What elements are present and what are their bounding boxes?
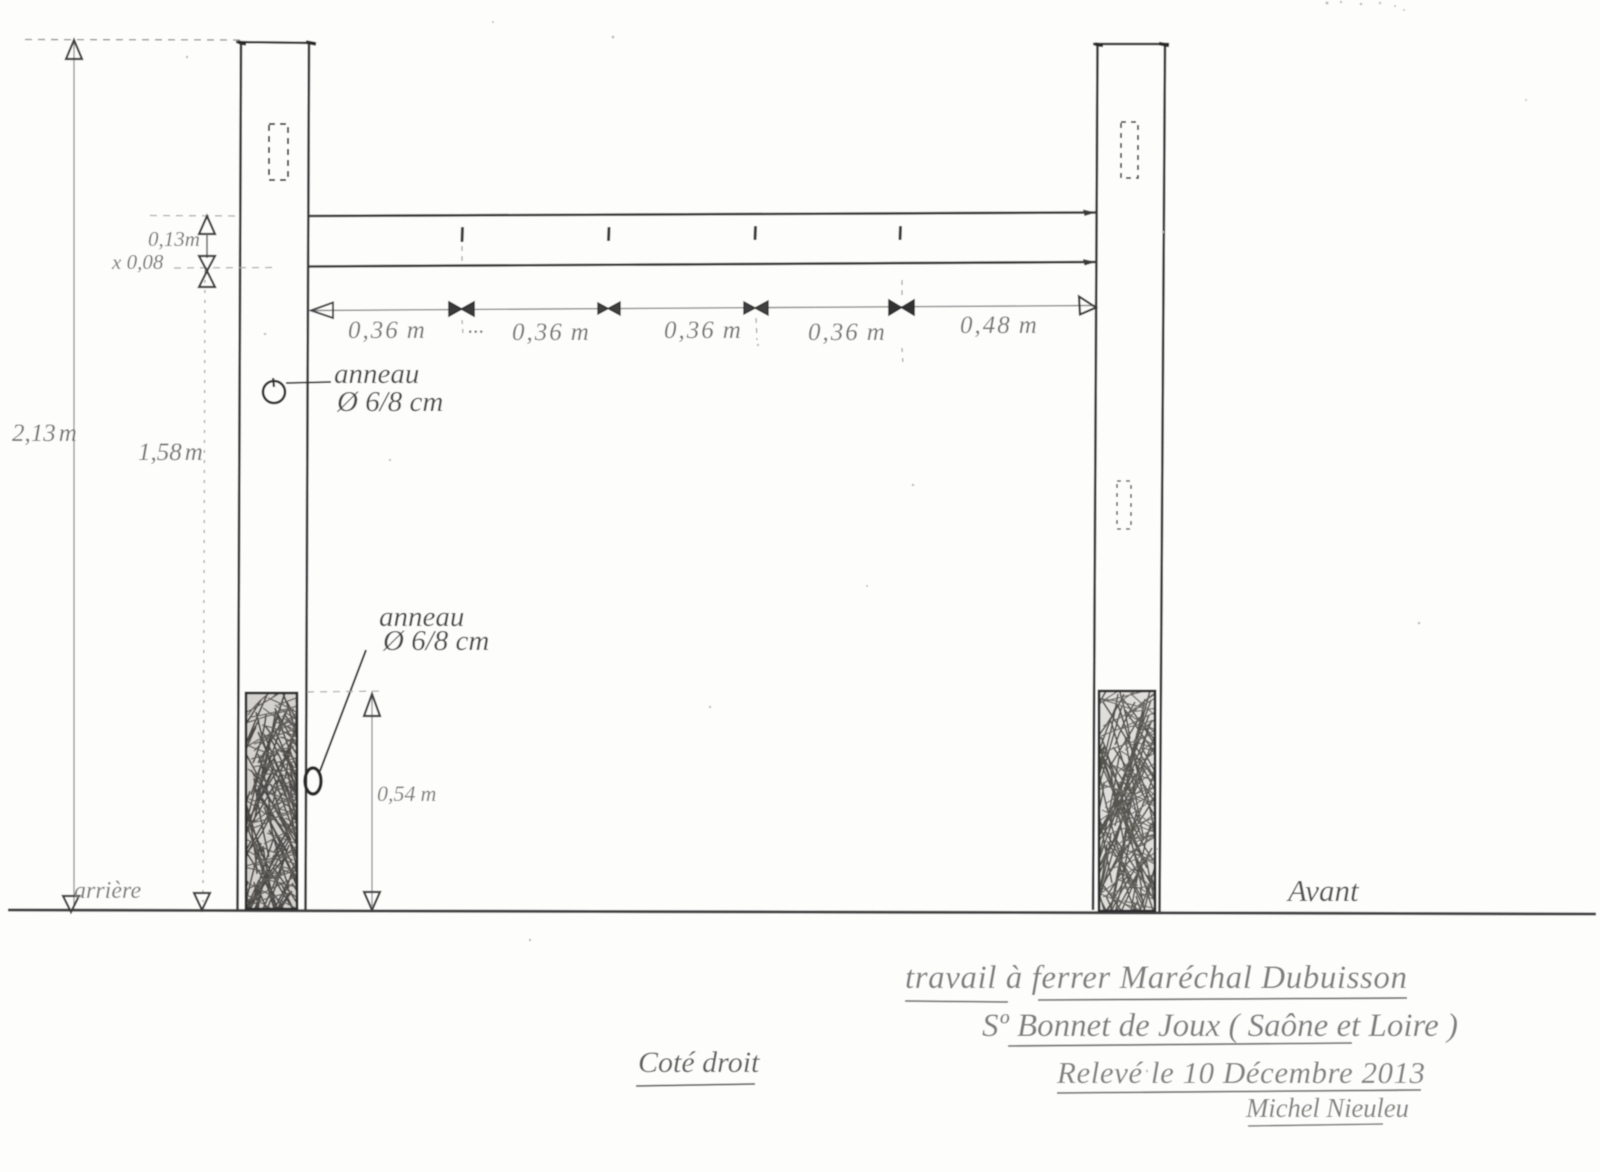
- svg-text:Relevé le 10 Décembre 2013: Relevé le 10 Décembre 2013: [1056, 1055, 1425, 1090]
- svg-text:x 0,08: x 0,08: [111, 250, 164, 274]
- svg-text:arrière: arrière: [74, 878, 141, 904]
- svg-text:Sº Bonnet de Joux ( Saône et L: Sº Bonnet de Joux ( Saône et Loire ): [982, 1008, 1458, 1044]
- svg-text:Coté droit: Coté droit: [638, 1046, 760, 1079]
- svg-text:0,36m: 0,36m: [512, 319, 591, 346]
- svg-text:2,13m: 2,13m: [12, 420, 77, 447]
- svg-text:0,36m: 0,36m: [348, 317, 427, 344]
- svg-text:0,54m: 0,54m: [377, 781, 436, 806]
- svg-text:...: ...: [468, 313, 485, 338]
- svg-text:Ø 6/8 cm: Ø 6/8 cm: [336, 386, 443, 418]
- svg-text:Avant: Avant: [1286, 873, 1360, 908]
- svg-text:1,58m: 1,58m: [138, 439, 203, 466]
- svg-text:0,48m: 0,48m: [960, 312, 1039, 339]
- svg-text:0,13m: 0,13m: [148, 227, 200, 251]
- svg-text:0,36m: 0,36m: [808, 319, 887, 346]
- svg-text:0,36m: 0,36m: [664, 317, 743, 344]
- svg-text:Michel Nieuleu: Michel Nieuleu: [1245, 1093, 1409, 1123]
- svg-text:Ø 6/8 cm: Ø 6/8 cm: [382, 625, 489, 657]
- svg-text:travail à ferrer Maréchal Dubu: travail à ferrer Maréchal Dubuisson: [905, 960, 1407, 996]
